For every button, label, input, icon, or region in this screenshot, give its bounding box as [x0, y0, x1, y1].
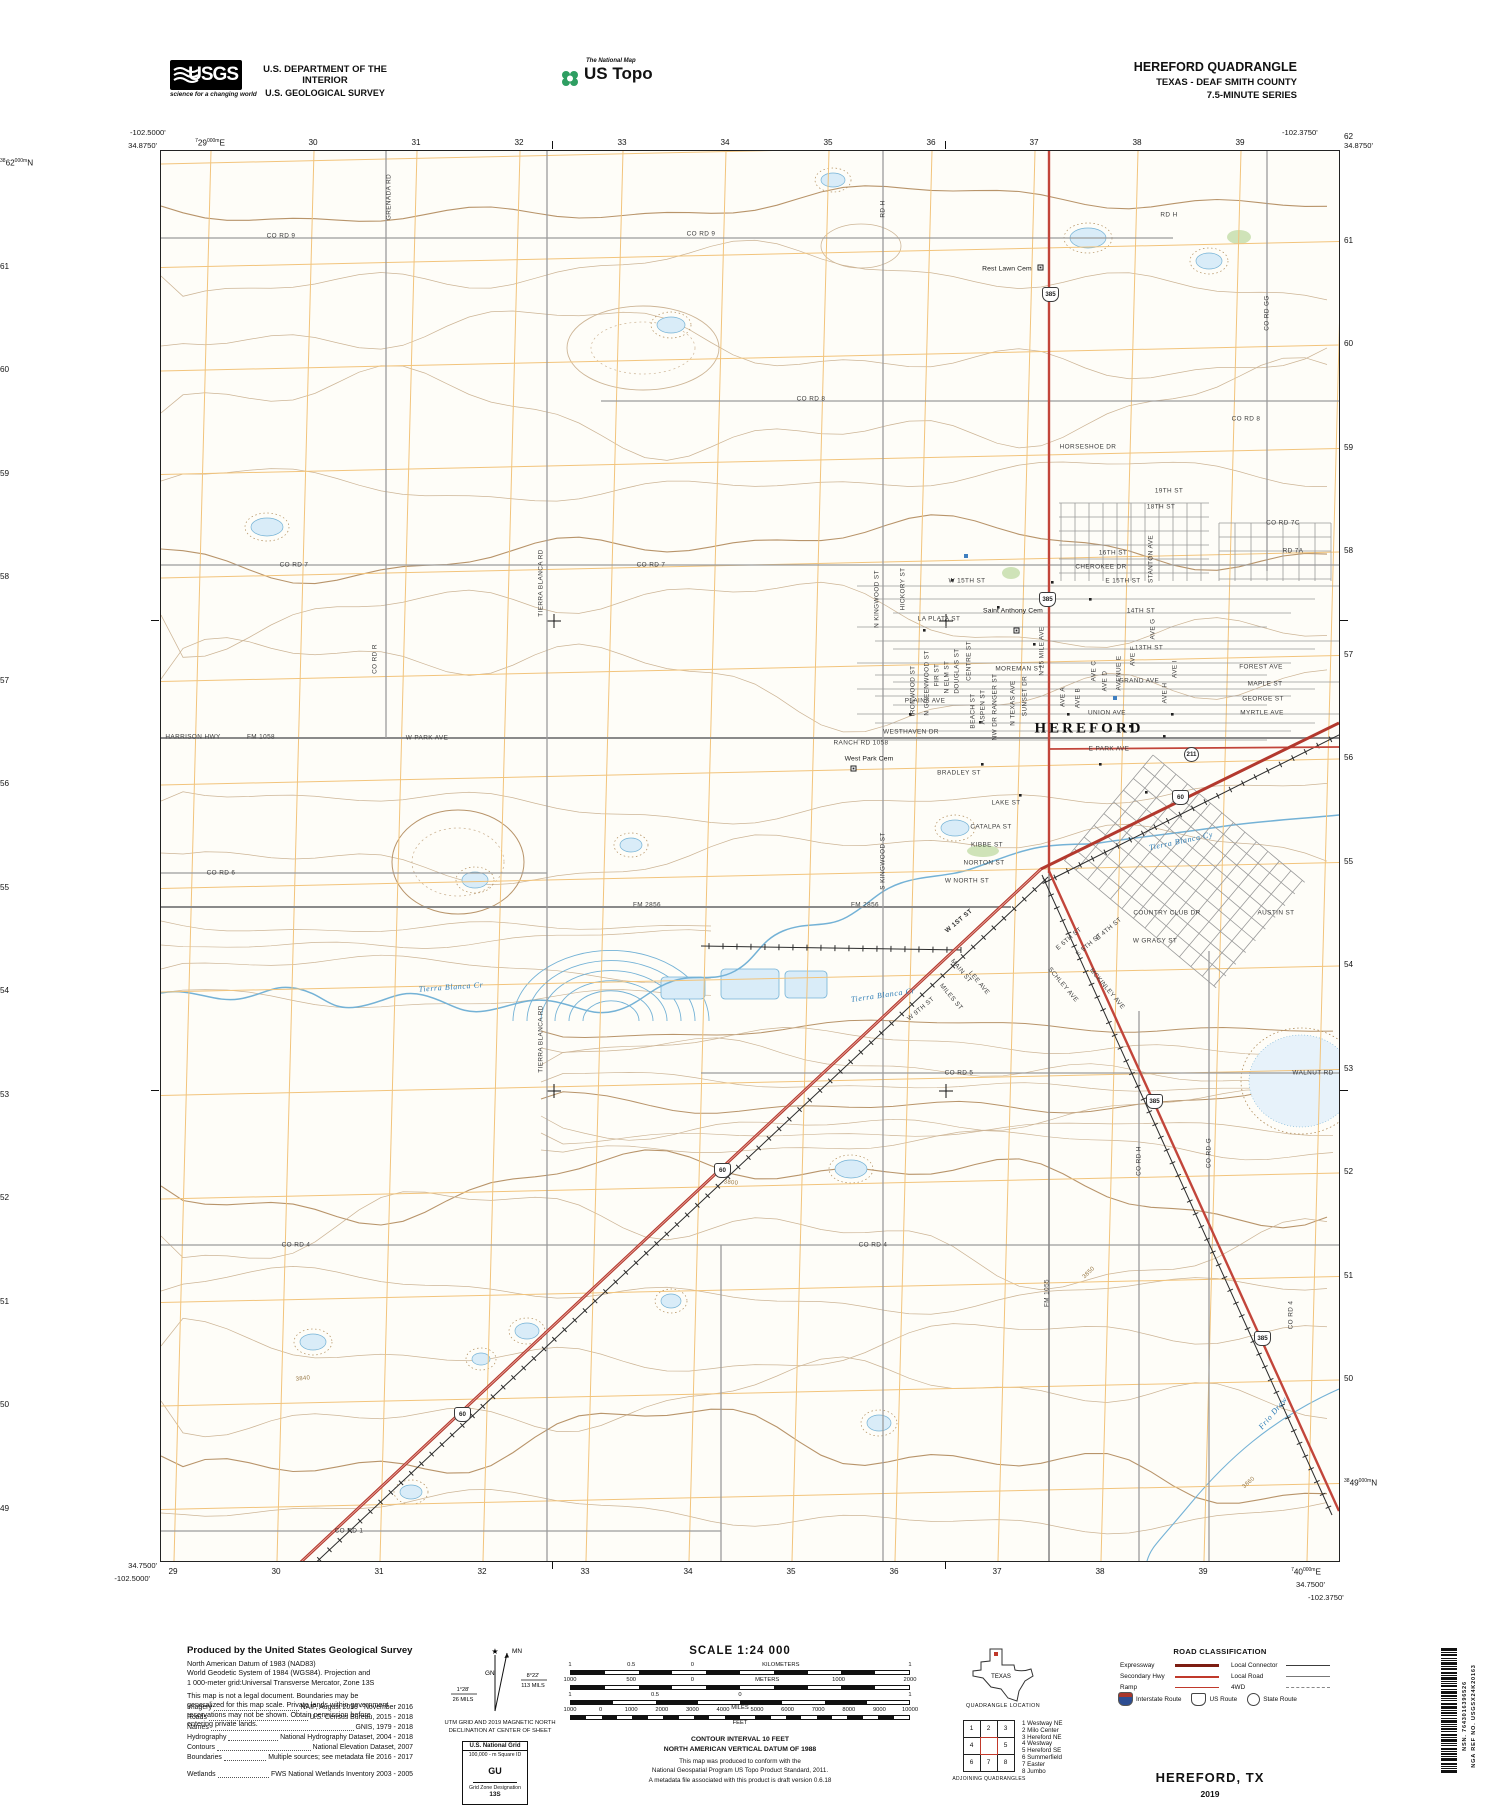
map-label: FM 1058 [247, 734, 275, 741]
barcode-bar [1441, 1683, 1457, 1684]
map-label: W GRACY ST [1133, 938, 1177, 945]
map-label: CO RD 7C [1266, 520, 1300, 527]
map-label: WALNUT RD [1292, 1070, 1333, 1077]
map-label: 3840 [295, 1375, 310, 1382]
nsn-text: NSN. 7643016396526 [1462, 1681, 1468, 1751]
scale-tick-label: 0 [691, 1662, 694, 1668]
scale-tick-label: 500 [626, 1677, 636, 1683]
nga-ref-text: NGA REF NO. USGSX24K20163 [1471, 1664, 1477, 1767]
produced-heading: Produced by the United States Geological… [187, 1645, 413, 1656]
map-label: HICKORY ST [900, 568, 907, 611]
grid-label: 30 [271, 1567, 280, 1576]
route-shield: 60 [454, 1407, 471, 1422]
scale-bar-segment [832, 1716, 847, 1719]
roadclass-sample-sec [1175, 1676, 1219, 1678]
roadclass-label: Local Connector [1231, 1662, 1286, 1669]
map-label: FOREST AVE [1239, 664, 1283, 671]
grid-label: 58 [0, 572, 155, 581]
grid-label: 54 [0, 986, 155, 995]
gn-mils: 26 MILS [453, 1697, 474, 1703]
grid-label: 62 [1344, 132, 1353, 141]
barcode-bar [1441, 1691, 1457, 1694]
adjoining-cell: 7 [980, 1754, 998, 1772]
map-label: CO RD 8 [797, 396, 826, 403]
barcode-bar [1441, 1695, 1457, 1697]
barcode-bar [1441, 1734, 1457, 1736]
scale-bar-segment [875, 1671, 909, 1674]
map-label: AVE C [1091, 661, 1098, 682]
scale-tick-label: 2000 [904, 1677, 917, 1683]
scale-bar-segment [782, 1701, 824, 1704]
scale-tick-label: KILOMETERS [762, 1662, 799, 1668]
grid-label: 3862000mN [0, 158, 155, 168]
map-label: BEACH ST [970, 693, 977, 728]
edge-tick [945, 1561, 946, 1569]
credits-list: ImageryNAIP, August 2016 - November 2016… [187, 1703, 413, 1780]
route-shield: 60 [714, 1163, 731, 1178]
credit-label: Contours [187, 1743, 215, 1753]
legend-shield-label: Interstate Route [1136, 1696, 1181, 1703]
map-label: West Park Cem [845, 756, 894, 763]
map-label: Tierra Blanca Cr [850, 986, 915, 1004]
scale-bar-segment [672, 1686, 706, 1689]
credit-leader [218, 1777, 269, 1778]
edge-tick [1340, 1090, 1348, 1091]
barcode-bar [1441, 1748, 1457, 1750]
map-label: CO RD 9 [267, 233, 296, 240]
adjoining-quadrangles-grid: 12345678 [963, 1720, 1014, 1771]
map-label: W PARK AVE [406, 735, 448, 742]
grid-label: 50 [0, 1400, 155, 1409]
map-label: N KINGWOOD ST [874, 570, 881, 628]
credit-label: Hydrography [187, 1733, 226, 1743]
scale-bar-segment [894, 1716, 909, 1719]
roadclass-row: ExpresswayLocal Connector [1120, 1660, 1330, 1671]
grid-label: 60 [1344, 339, 1353, 348]
route-shield: 385 [1042, 287, 1059, 302]
grid-label: 61 [1344, 236, 1353, 245]
scale-bar [570, 1670, 910, 1675]
scale-bar-segment [771, 1716, 786, 1719]
barcode-bar [1441, 1710, 1457, 1711]
usgs-wave-icon [173, 65, 199, 85]
dept-line1: U.S. DEPARTMENT OF THE INTERIOR [240, 64, 410, 86]
grid-label: 38 [1095, 1567, 1104, 1576]
grid-label: 51 [1344, 1271, 1353, 1280]
barcode-bar [1441, 1706, 1457, 1709]
map-label: E PARK AVE [1089, 746, 1130, 753]
scale-bar-segment [632, 1716, 647, 1719]
map-label: AVE A [1060, 687, 1067, 707]
grid-label: 53 [0, 1090, 155, 1099]
usgs-logo: USGS [170, 60, 242, 90]
credit-leader [209, 1720, 308, 1721]
grid-label: 59 [1344, 443, 1353, 452]
scale-tick-label: 1000 [832, 1677, 845, 1683]
map-label: W 15TH ST [949, 578, 986, 585]
roadclass-label: 4WD [1231, 1684, 1286, 1691]
scale-tick-label: 7000 [812, 1707, 825, 1713]
scale-bar-segment [755, 1716, 770, 1719]
map-label: FM 2856 [633, 902, 661, 909]
credit-value: U.S. Census Bureau, 2015 - 2018 [310, 1713, 413, 1723]
map-label: RD H [1160, 212, 1177, 219]
map-label: FM 1055 [1044, 1279, 1051, 1307]
scale-bar-segment [605, 1686, 639, 1689]
grid-label: 39 [1198, 1567, 1207, 1576]
map-label: CO RD 1 [335, 1528, 364, 1535]
roadclass-sample-loc [1286, 1676, 1330, 1677]
credit-leader [224, 1760, 266, 1761]
credit-row: NamesGNIS, 1979 - 2018 [187, 1723, 413, 1733]
grid-label: 55 [1344, 857, 1353, 866]
route-shield: 385 [1146, 1094, 1163, 1109]
scale-bar-segment [656, 1701, 698, 1704]
roadclass-sample-fwd [1286, 1687, 1330, 1688]
map-label: AVE F [1130, 646, 1137, 666]
scale-bars: 10.50KILOMETERS110005000METERS1000200010… [570, 1662, 910, 1722]
map-label: PLAINS AVE [905, 698, 945, 705]
map-label: BRADLEY ST [937, 770, 981, 777]
barcode-bar [1441, 1658, 1457, 1659]
roadclass-sample-conn [1286, 1665, 1330, 1666]
scale-bar-segment [648, 1716, 663, 1719]
credit-leader [228, 1740, 278, 1741]
map-label: RD H [880, 200, 887, 217]
corner-coordinate: -102.5000' [114, 1574, 150, 1583]
scale-tick-label: 3000 [686, 1707, 699, 1713]
contour-note: CONTOUR INTERVAL 10 FEET NORTH AMERICAN … [590, 1735, 890, 1755]
scale-bar [570, 1685, 910, 1690]
route-shield: 211 [1184, 747, 1199, 762]
map-label: MCKINLEY AVE [1088, 967, 1126, 1011]
edge-tick [151, 1090, 159, 1091]
map-label: Saint Anthony Cem [983, 608, 1043, 615]
map-label: WESTHAVEN DR [883, 729, 939, 736]
map-label: MYRTLE AVE [1240, 710, 1284, 717]
scale-tick-label: 5000 [751, 1707, 764, 1713]
grid-label: 53 [1344, 1064, 1353, 1073]
map-label: TIERRA BLANCA RD [538, 1005, 545, 1072]
credit-label: Imagery [187, 1703, 212, 1713]
scale-tick-label: 1 [568, 1662, 571, 1668]
barcode-bar [1441, 1698, 1457, 1699]
edge-tick [945, 141, 946, 149]
map-label: AVE D [1102, 671, 1109, 692]
map-label: W NORTH ST [945, 878, 989, 885]
scale-bar-segment [571, 1686, 605, 1689]
sheet-title: HEREFORD, TX [1110, 1770, 1310, 1785]
scale-bar-segment [605, 1671, 639, 1674]
declination-caption: UTM GRID AND 2019 MAGNETIC NORTH DECLINA… [430, 1719, 570, 1735]
grid-label: 57 [0, 676, 155, 685]
map-label: STANTON AVE [1148, 535, 1155, 583]
scale-unit: FEET [733, 1720, 748, 1726]
grid-label: 57 [1344, 650, 1353, 659]
map-label: HEREFORD [1034, 721, 1143, 738]
roadclass-label: Local Road [1231, 1673, 1286, 1680]
map-label: HORSESHOE DR [1060, 444, 1117, 451]
map-label: CO RD G [1206, 1138, 1213, 1168]
map-label: MAPLE ST [1248, 681, 1283, 688]
scale-tick-label: 6000 [781, 1707, 794, 1713]
roadclass-label: Expressway [1120, 1662, 1175, 1669]
map-label: Frio Draw [1257, 1395, 1290, 1431]
map-label: HARRISON HWY [165, 734, 220, 741]
scale-tick-label: 8000 [842, 1707, 855, 1713]
ustopo-icon [558, 66, 582, 90]
credit-row: ContoursNational Elevation Dataset, 2007 [187, 1743, 413, 1753]
scale-tick-label: 1000 [564, 1707, 577, 1713]
map-label: 14TH ST [1127, 608, 1155, 615]
map-label: CO RD 4 [859, 1242, 888, 1249]
barcode-bar [1441, 1689, 1457, 1690]
scale-bar-segment [867, 1701, 909, 1704]
sheet-year: 2019 [1110, 1789, 1310, 1799]
scale-bar-segment [571, 1716, 586, 1719]
scale-bar-row: 10.50KILOMETERS1 [570, 1662, 910, 1677]
barcode-bar [1441, 1758, 1457, 1761]
grid-label: 35 [786, 1567, 795, 1576]
grid-label: 30 [308, 138, 317, 147]
route-shield: 60 [1172, 790, 1189, 805]
barcode-bar [1441, 1668, 1457, 1670]
declination-diagram: ★ MN GN 1°28' 26 MILS 8°22' 113 MILS [437, 1645, 561, 1725]
map-area: CO RD 9CO RD 9GRENADA RDRD HRD HRest Law… [160, 150, 1340, 1562]
mn-mils: 113 MILS [521, 1683, 545, 1689]
ushield-icon [1191, 1693, 1206, 1706]
barcode-bar [1441, 1654, 1457, 1656]
map-label: IRONWOOD ST [910, 666, 917, 717]
map-label: W 1ST ST [944, 908, 974, 935]
map-label: NORTON ST [963, 860, 1004, 867]
adjoining-cell [980, 1737, 998, 1755]
scale-bar-segment [672, 1671, 706, 1674]
credit-label: Boundaries [187, 1753, 222, 1763]
grid-label: 29 [168, 1567, 177, 1576]
grid-label: 52 [1344, 1167, 1353, 1176]
map-label: CENTRE ST [966, 641, 973, 681]
grid-label: 50 [1344, 1374, 1353, 1383]
scale-bar-segment [571, 1701, 613, 1704]
adjoining-cell: 4 [963, 1737, 981, 1755]
barcode-bar [1441, 1660, 1457, 1661]
grid-label: 36 [926, 138, 935, 147]
scale-bar-segment [740, 1671, 774, 1674]
scale-tick-label: 1000 [564, 1677, 577, 1683]
barcode-bar [1441, 1745, 1457, 1746]
legend-shield-label: State Route [1263, 1696, 1297, 1703]
barcode-bar [1441, 1728, 1457, 1730]
credit-row: WetlandsFWS National Wetlands Inventory … [187, 1770, 413, 1780]
map-label: RANCH RD 1058 [834, 740, 889, 747]
scale-bar-segment [808, 1686, 842, 1689]
usng-title: U.S. National Grid [463, 1742, 527, 1751]
sshield-icon [1247, 1693, 1260, 1706]
legend-shield-label: US Route [1209, 1696, 1237, 1703]
scale-tick-label: 1 [908, 1662, 911, 1668]
map-label: AUSTIN ST [1258, 910, 1295, 917]
grid-label: 34 [683, 1567, 692, 1576]
credit-row: HydrographyNational Hydrography Dataset,… [187, 1733, 413, 1743]
barcode-bar [1441, 1681, 1457, 1682]
scale-bar-segment [602, 1716, 617, 1719]
map-label: 13TH ST [1135, 645, 1163, 652]
grid-label: 60 [0, 365, 155, 374]
grid-label: 33 [580, 1567, 589, 1576]
map-label: N 25 MILE AVE [1039, 626, 1046, 675]
quad-name: HEREFORD QUADRANGLE [997, 60, 1297, 74]
credit-row: ImageryNAIP, August 2016 - November 2016 [187, 1703, 413, 1713]
roadclass-label: Ramp [1120, 1684, 1175, 1691]
barcode-bar [1441, 1672, 1457, 1674]
barcode-bar [1441, 1753, 1457, 1755]
scale-title: SCALE 1:24 000 [555, 1645, 925, 1657]
map-label: CO RD GG [1264, 295, 1271, 331]
adjoining-cell: 3 [997, 1720, 1015, 1738]
map-label: LA PLATA ST [918, 616, 961, 623]
quad-series: 7.5-MINUTE SERIES [997, 90, 1297, 101]
map-label: 3850 [1082, 1266, 1097, 1280]
grid-north-label: GN [485, 1670, 495, 1677]
barcode-bar [1441, 1768, 1457, 1769]
map-label: CHEROKEE DR [1075, 564, 1126, 571]
map-label: AVENUE E [1116, 655, 1123, 690]
barcode-bar [1441, 1685, 1457, 1687]
grid-label: 51 [0, 1297, 155, 1306]
roadclass-sample-exp [1175, 1664, 1219, 1667]
map-label: KIBBE ST [971, 842, 1003, 849]
scale-bar-segment [639, 1686, 673, 1689]
barcode-bar [1441, 1712, 1457, 1714]
corner-coordinate: 34.7500' [1296, 1580, 1325, 1589]
map-label: DOUGLAS ST [954, 648, 961, 693]
map-label: TIERRA BLANCA RD [538, 549, 545, 616]
grid-label: 31 [374, 1567, 383, 1576]
corner-coordinate: 34.8750' [128, 141, 157, 150]
quad-state-county: TEXAS - DEAF SMITH COUNTY [997, 77, 1297, 88]
barcode-bar [1441, 1662, 1457, 1665]
true-north-star: ★ [491, 1647, 498, 1656]
legend-shield-1: US Route [1191, 1693, 1237, 1706]
grid-label: 37 [1029, 138, 1038, 147]
map-label: CO RD 4 [1288, 1301, 1295, 1330]
barcode-bar [1441, 1700, 1457, 1701]
scale-tick-label: 1 [568, 1692, 571, 1698]
scale-bar-segment [825, 1701, 867, 1704]
barcode-bar [1441, 1718, 1457, 1719]
map-label: 18TH ST [1147, 504, 1175, 511]
map-label: CO RD 6 [207, 870, 236, 877]
scale-bar-segment [694, 1716, 709, 1719]
map-label: S KINGWOOD ST [880, 832, 887, 889]
map-label: GRAND AVE [1119, 678, 1159, 685]
map-label: CO RD 5 [945, 1070, 974, 1077]
scale-bar-row: 1000010002000300040005000600070008000900… [570, 1707, 910, 1722]
grid-label: 729000mE [195, 138, 225, 148]
map-label: CO RD 9 [687, 231, 716, 238]
map-label: CO RD H [1136, 1146, 1143, 1176]
scale-bar-row: 10005000METERS10002000 [570, 1677, 910, 1692]
route-shield: 385 [1254, 1331, 1271, 1346]
grid-label: 38 [1132, 138, 1141, 147]
edge-tick [151, 620, 159, 621]
map-label: N TEXAS AVE [1010, 680, 1017, 725]
corner-coordinate: 34.8750' [1344, 141, 1373, 150]
dept-line2: U.S. GEOLOGICAL SURVEY [240, 88, 410, 98]
edge-tick [552, 1561, 553, 1569]
ishield-icon [1118, 1692, 1133, 1706]
barcode-bar [1441, 1751, 1457, 1752]
legend-shield-2: State Route [1247, 1693, 1297, 1706]
credit-row: RoadsU.S. Census Bureau, 2015 - 2018 [187, 1713, 413, 1723]
credit-leader [211, 1730, 354, 1731]
scale-bar-segment [808, 1671, 842, 1674]
scale-tick-label: 9000 [873, 1707, 886, 1713]
scale-bar-segment [786, 1716, 801, 1719]
map-label: LEE AVE [967, 970, 991, 996]
scale-tick-label: 10000 [902, 1707, 918, 1713]
scale-tick-label: METERS [755, 1677, 779, 1683]
map-label: 19TH ST [1155, 488, 1183, 495]
corner-coordinate: -102.3750' [1308, 1593, 1344, 1602]
scale-bar-segment [571, 1671, 605, 1674]
map-label: FIR ST [934, 664, 941, 687]
barcode-bar [1441, 1766, 1457, 1767]
conformance-note: This map was produced to conform with th… [590, 1757, 890, 1785]
barcode-bar [1441, 1715, 1457, 1716]
scale-bar-segment [663, 1716, 678, 1719]
sheet-title-block: HEREFORD, TX 2019 [1110, 1770, 1310, 1799]
scale-block: SCALE 1:24 000 [555, 1645, 925, 1657]
credit-value: National Hydrography Dataset, 2004 - 201… [280, 1733, 413, 1743]
barcode-bar [1441, 1677, 1457, 1680]
adjoining-cell: 8 [997, 1754, 1015, 1772]
credit-row: BoundariesMultiple sources; see metadata… [187, 1753, 413, 1763]
scale-bar-segment [817, 1716, 832, 1719]
map-labels-layer: CO RD 9CO RD 9GRENADA RDRD HRD HRest Law… [161, 151, 1339, 1561]
texas-label: TEXAS [991, 1674, 1011, 1680]
map-label: Tierra Blanca Cr [418, 980, 483, 993]
map-label: E 5TH ST [1075, 932, 1103, 957]
scale-tick-label: 0.5 [651, 1692, 659, 1698]
adjoining-cell: 1 [963, 1720, 981, 1738]
grid-label: 35 [823, 138, 832, 147]
barcode [1441, 1648, 1457, 1774]
credit-label: Names [187, 1723, 209, 1733]
credit-value: GNIS, 1979 - 2018 [356, 1723, 413, 1733]
mn-angle: 8°22' [527, 1673, 540, 1679]
scale-bar-segment [679, 1716, 694, 1719]
map-label: CO RD 7 [280, 562, 309, 569]
barcode-bar [1441, 1648, 1457, 1651]
map-label: 16TH ST [1099, 550, 1127, 557]
barcode-bar [1441, 1726, 1457, 1727]
grid-label: 37 [992, 1567, 1001, 1576]
map-label: CO RD R [372, 644, 379, 674]
map-label: CO RD 8 [1232, 416, 1261, 423]
map-label: E 15TH ST [1105, 578, 1140, 585]
map-label: SCHLEY AVE [1046, 966, 1079, 1004]
barcode-bar [1441, 1675, 1457, 1676]
datum-text: North American Datum of 1983 (NAD83) Wor… [187, 1659, 413, 1687]
grid-label: 58 [1344, 546, 1353, 555]
credit-label: Roads [187, 1713, 207, 1723]
adjoining-list-item: 8 Jumbo [1022, 1769, 1112, 1776]
texas-outline: TEXAS [963, 1648, 1043, 1704]
scale-bar-segment [863, 1716, 878, 1719]
map-label: AVE G [1150, 618, 1157, 639]
